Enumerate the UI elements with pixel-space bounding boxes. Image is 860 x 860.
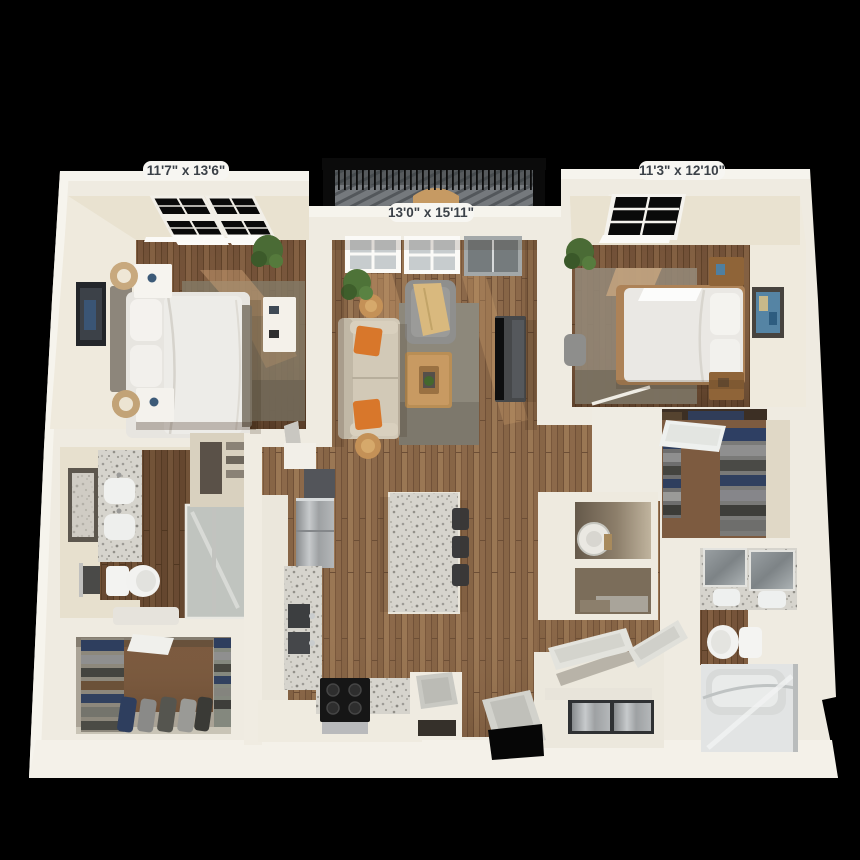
svg-text:11'3" x 12'10": 11'3" x 12'10" [639,163,725,178]
svg-text:11'7" x 13'6": 11'7" x 13'6" [147,163,226,178]
svg-text:13'0" x 15'11": 13'0" x 15'11" [388,205,474,220]
